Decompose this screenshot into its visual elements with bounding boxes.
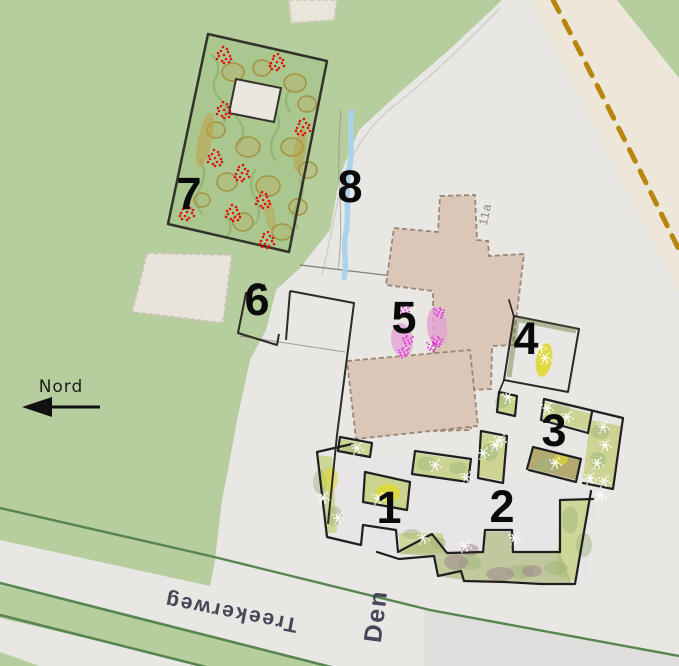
outbuilding-top [289,0,337,23]
region-label-3: 3 [541,405,566,456]
site-plan-map: Nord Treekerweg Den 11a 1 2 3 4 5 6 7 8 [0,0,679,666]
region-label-6: 6 [244,274,269,325]
north-label: Nord [39,377,84,397]
region-label-1: 1 [376,482,401,533]
region-label-2: 2 [489,481,514,532]
region-label-7: 7 [176,168,201,219]
woodland-clearing [229,79,281,122]
barn-building [132,253,232,323]
region-label-4: 4 [513,313,538,364]
region-label-8: 8 [337,161,362,212]
region-label-5: 5 [391,292,416,343]
